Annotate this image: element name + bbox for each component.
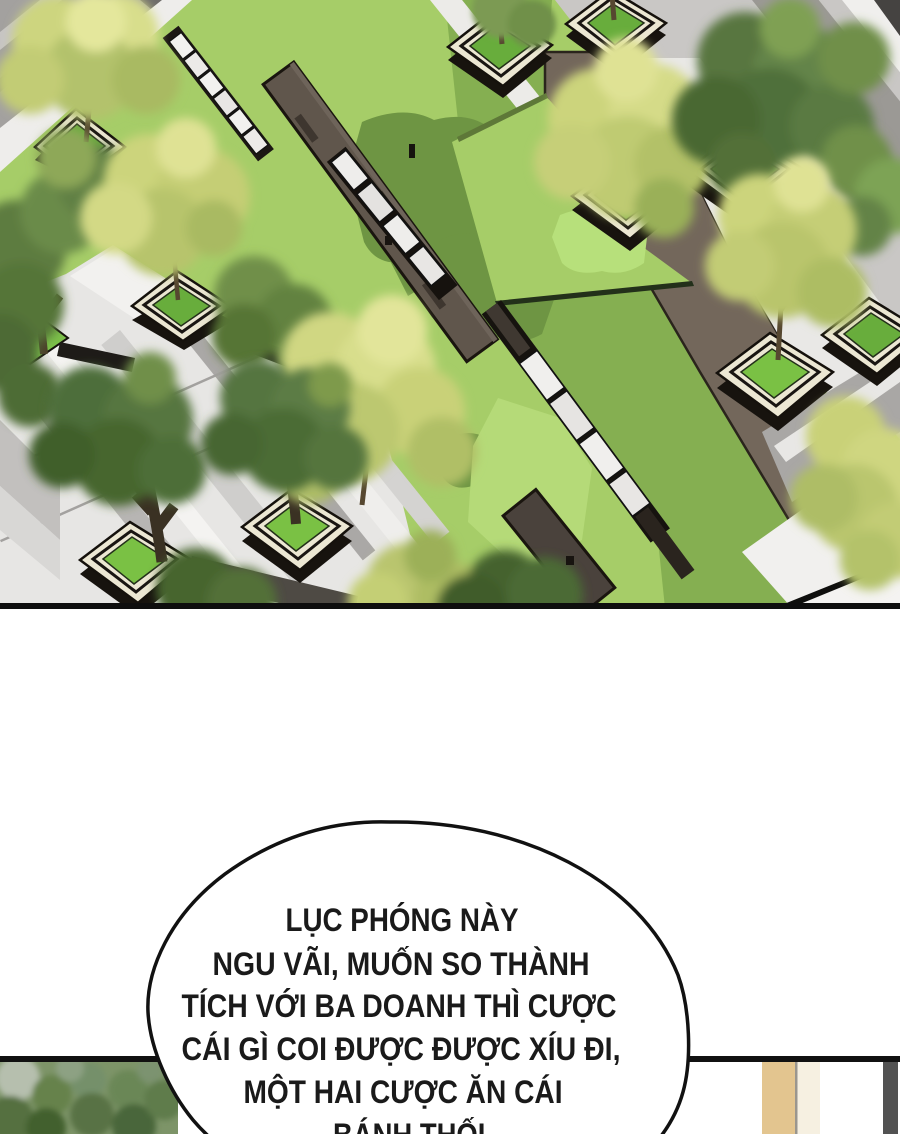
svg-text:CÁI GÌ COI ĐƯỢC ĐƯỢC XÍU ĐI,: CÁI GÌ COI ĐƯỢC ĐƯỢC XÍU ĐI, xyxy=(182,1031,621,1067)
svg-text:LỤC PHÓNG NÀY: LỤC PHÓNG NÀY xyxy=(286,902,519,938)
svg-text:NGU VÃI, MUỐN SO THÀNH: NGU VÃI, MUỐN SO THÀNH xyxy=(213,946,590,982)
svg-text:BÁNH THỐI,: BÁNH THỐI, xyxy=(333,1117,493,1134)
svg-text:MỘT HAI CƯỢC ĂN CÁI: MỘT HAI CƯỢC ĂN CÁI xyxy=(244,1074,563,1110)
svg-text:TÍCH VỚI BA DOANH THÌ CƯỢC: TÍCH VỚI BA DOANH THÌ CƯỢC xyxy=(182,988,617,1024)
